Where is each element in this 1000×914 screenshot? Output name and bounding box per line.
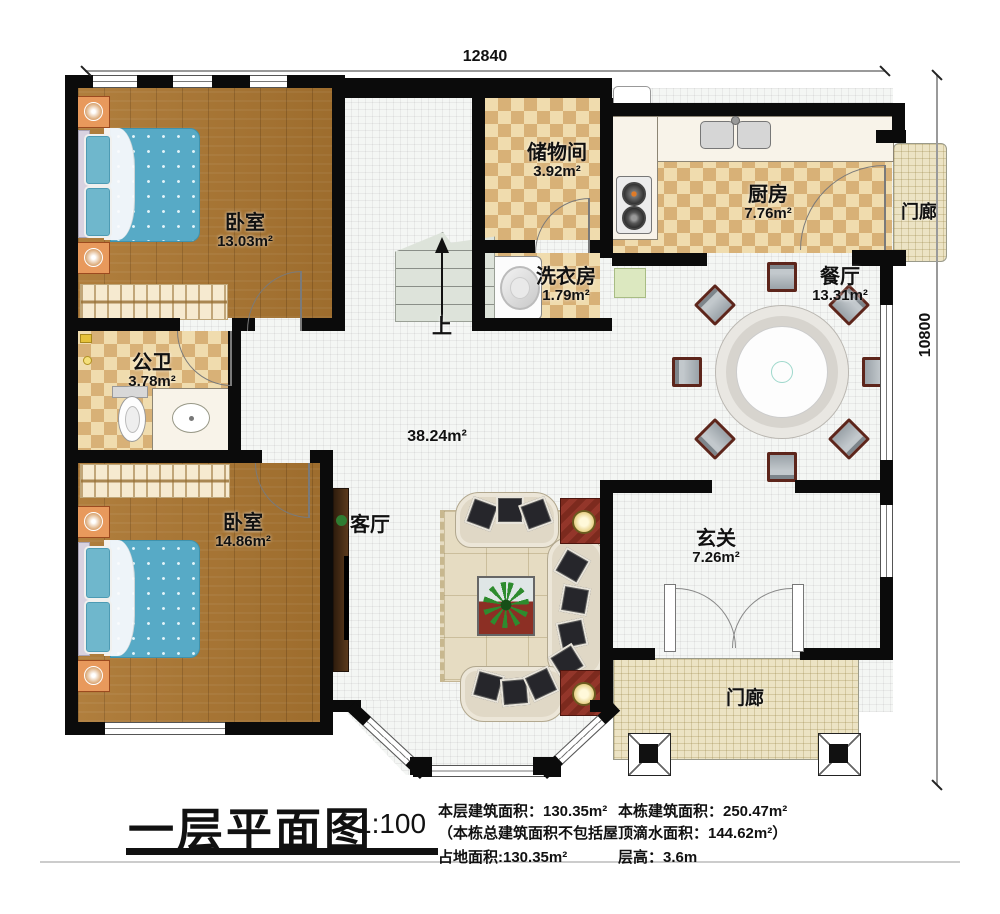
window bbox=[93, 75, 137, 88]
wardrobe bbox=[80, 284, 228, 320]
room-name: 卧室 bbox=[215, 512, 271, 534]
sofa-pillow bbox=[559, 584, 591, 616]
nightstand-lamp bbox=[84, 512, 103, 531]
wall-segment bbox=[302, 318, 345, 331]
wall-segment bbox=[612, 253, 707, 266]
stat-floor-area: 本层建筑面积：130.35m² bbox=[438, 800, 607, 821]
tv-screen bbox=[344, 556, 349, 640]
wall-segment bbox=[65, 75, 78, 735]
kitchen-sink-left bbox=[700, 121, 734, 149]
room-name: 客厅 bbox=[350, 514, 390, 536]
wall-segment bbox=[800, 648, 880, 660]
stat-storey-height: 层高：3.6m bbox=[618, 846, 697, 867]
dimension-width-text: 12840 bbox=[463, 48, 508, 65]
door-leaf bbox=[308, 463, 310, 518]
room-name: 餐厅 bbox=[812, 266, 868, 288]
bathroom-sink-drain bbox=[189, 416, 194, 421]
dimension-line-top bbox=[85, 70, 885, 72]
stat-text: 本栋建筑面积：250.47m² bbox=[618, 803, 787, 820]
room-area: 14.86m² bbox=[215, 534, 271, 551]
room-name: 门廊 bbox=[726, 688, 764, 709]
room-name: 公卫 bbox=[128, 352, 176, 374]
entry-door-jamb bbox=[664, 584, 676, 652]
window bbox=[173, 75, 212, 88]
bay-corner-block bbox=[410, 757, 432, 775]
stat-building-area: 本栋建筑面积：250.47m² bbox=[618, 800, 787, 821]
room-label-laundry: 洗衣房 1.79m² bbox=[536, 266, 596, 305]
room-area: 7.26m² bbox=[692, 550, 740, 567]
wall-segment bbox=[472, 240, 535, 253]
room-name: 门廊 bbox=[901, 202, 937, 222]
room-name: 卧室 bbox=[217, 212, 273, 234]
wall-segment bbox=[600, 98, 613, 258]
wall-segment bbox=[612, 103, 905, 116]
nightstand-lamp bbox=[84, 248, 103, 267]
room-label-living: 客厅 bbox=[350, 514, 390, 536]
kitchen-appliance-green bbox=[614, 268, 646, 298]
toilet-bowl-inner bbox=[125, 406, 140, 433]
stat-text: （本栋总建筑面积不包括屋顶滴水面积：144.62m²） bbox=[438, 825, 787, 842]
dimension-line-right bbox=[936, 75, 938, 785]
bed-pillow bbox=[84, 546, 112, 600]
floorplan-canvas: 上 bbox=[0, 0, 1000, 914]
kitchen-faucet bbox=[731, 116, 740, 125]
side-table-lamp bbox=[572, 510, 596, 534]
wall-segment bbox=[600, 480, 712, 493]
wall-segment bbox=[472, 318, 612, 331]
porch-column-core bbox=[639, 744, 658, 763]
room-name: 洗衣房 bbox=[536, 266, 596, 288]
window bbox=[880, 505, 893, 577]
wall-segment bbox=[876, 130, 906, 143]
dimension-height-text: 10800 bbox=[917, 313, 934, 358]
room-area: 1.79m² bbox=[536, 288, 596, 305]
washing-machine-drum-inner bbox=[510, 277, 530, 299]
door-leaf bbox=[884, 165, 886, 250]
stat-text: 本层建筑面积：130.35m² bbox=[438, 803, 607, 820]
wall-segment bbox=[65, 450, 262, 463]
bed-pillow bbox=[84, 134, 112, 186]
bathroom-lamp-pull bbox=[83, 356, 92, 365]
hall-area-label: 38.24m² bbox=[407, 428, 467, 446]
stairs-arrow-head bbox=[435, 237, 449, 253]
room-label-bedroom-top: 卧室 13.03m² bbox=[217, 212, 273, 251]
dimension-label-width: 12840 bbox=[440, 48, 530, 66]
bed-pillow bbox=[84, 186, 112, 238]
room-label-porch-bottom: 门廊 bbox=[726, 688, 764, 709]
wall-segment bbox=[852, 250, 893, 266]
room-area: 13.03m² bbox=[217, 234, 273, 251]
nightstand-lamp bbox=[84, 102, 103, 121]
bay-corner-block bbox=[533, 757, 555, 775]
entry-door-jamb bbox=[792, 584, 804, 652]
room-label-bathroom: 公卫 3.78m² bbox=[128, 352, 176, 391]
stove-burner-1 bbox=[622, 182, 646, 206]
room-label-storage: 储物间 3.92m² bbox=[527, 142, 587, 181]
room-label-kitchen: 厨房 7.76m² bbox=[744, 184, 792, 223]
window bbox=[880, 305, 893, 460]
wall-segment bbox=[332, 75, 345, 331]
window bbox=[432, 765, 544, 777]
stat-text: 占地面积:130.35m² bbox=[438, 849, 567, 866]
stairs-up-text: 上 bbox=[432, 316, 452, 338]
wall-segment bbox=[472, 98, 485, 331]
porch-column bbox=[818, 733, 861, 776]
wall-segment bbox=[345, 78, 612, 98]
nightstand-lamp bbox=[84, 666, 103, 685]
door-leaf bbox=[230, 331, 232, 386]
room-label-porch-right: 门廊 bbox=[901, 202, 937, 222]
scale-label: 1:100 bbox=[356, 808, 426, 840]
stat-total-note: （本栋总建筑面积不包括屋顶滴水面积：144.62m²） bbox=[438, 822, 787, 843]
dimension-label-height: 10800 bbox=[917, 305, 935, 365]
stat-footprint: 占地面积:130.35m² bbox=[438, 846, 567, 867]
porch-column bbox=[628, 733, 671, 776]
stairs-up-label: 上 bbox=[432, 316, 452, 338]
bathroom-lamp bbox=[80, 334, 92, 343]
room-label-foyer: 玄关 7.26m² bbox=[692, 528, 740, 567]
tv-cabinet-plant bbox=[336, 515, 347, 526]
porch-column-core bbox=[829, 744, 848, 763]
room-area: 13.31m² bbox=[812, 288, 868, 305]
room-area: 7.76m² bbox=[744, 206, 792, 223]
title-underline bbox=[126, 848, 438, 855]
wardrobe bbox=[80, 464, 230, 498]
door-leaf bbox=[300, 271, 302, 331]
room-name: 厨房 bbox=[744, 184, 792, 206]
room-area: 3.92m² bbox=[527, 164, 587, 181]
room-label-bedroom-bottom: 卧室 14.86m² bbox=[215, 512, 271, 551]
dining-chair bbox=[767, 262, 797, 292]
room-name: 玄关 bbox=[692, 528, 740, 550]
wall-segment bbox=[600, 480, 613, 660]
dining-chair bbox=[672, 357, 702, 387]
scale-text: 1:100 bbox=[356, 808, 426, 839]
bed-pillow bbox=[84, 600, 112, 654]
dining-table-center bbox=[771, 361, 793, 383]
coffee-table-plant bbox=[483, 582, 529, 628]
bay-wall-stub bbox=[590, 700, 612, 712]
dining-chair bbox=[767, 452, 797, 482]
door-leaf bbox=[588, 198, 590, 253]
wall-segment bbox=[795, 480, 880, 493]
stairs-direction-line bbox=[441, 248, 443, 324]
room-label-dining: 餐厅 13.31m² bbox=[812, 266, 868, 305]
kitchen-sink-right bbox=[737, 121, 771, 149]
room-name: 储物间 bbox=[527, 142, 587, 164]
wall-segment bbox=[65, 318, 180, 331]
window bbox=[105, 722, 225, 735]
window bbox=[250, 75, 287, 88]
stove-burner-2 bbox=[622, 206, 646, 230]
room-area: 3.78m² bbox=[128, 374, 176, 391]
stat-text: 层高：3.6m bbox=[618, 849, 697, 866]
wall-segment bbox=[320, 450, 333, 735]
room-area: 38.24m² bbox=[407, 428, 467, 446]
